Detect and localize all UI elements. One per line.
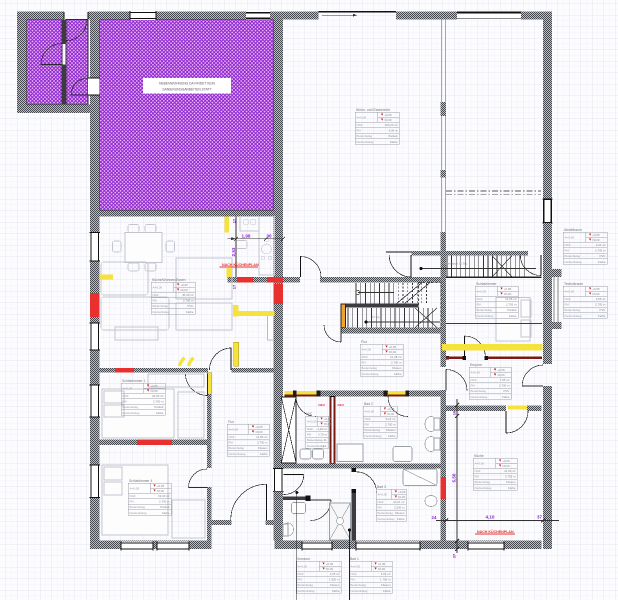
svg-text:1,706 m: 1,706 m [380,578,391,582]
svg-text:NEU: NEU [338,403,345,407]
svg-text:±0,00: ±0,00 [150,389,158,393]
svg-text:Bodenbelag: Bodenbelag [351,583,367,587]
svg-text:A=0,00: A=0,00 [475,461,485,465]
svg-text:2,700 m: 2,700 m [499,384,510,388]
svg-text:2,705 m: 2,705 m [595,303,606,307]
svg-text:Küche: Küche [474,454,484,458]
svg-text:PVC: PVC [600,254,606,258]
svg-text:NGF: NGF [477,297,483,301]
svg-text:Empore: Empore [470,363,482,367]
svg-text:2,700 m: 2,700 m [153,400,164,404]
svg-text:+0,05: +0,05 [504,287,512,291]
svg-text:RH: RH [229,441,233,445]
svg-text:RH: RH [130,500,134,504]
svg-text:±0,00: ±0,00 [378,567,386,571]
svg-text:NACH KÜCHENPLAN: NACH KÜCHENPLAN [477,529,514,534]
svg-text:Flur: Flur [228,420,235,424]
svg-text:Farbe: Farbe [502,395,510,399]
svg-text:NGF: NGF [378,500,384,504]
svg-text:Farbe: Farbe [508,486,516,490]
svg-text:Farbe: Farbe [186,310,194,314]
svg-text:Deckenbelag: Deckenbelag [153,310,170,314]
svg-text:RH: RH [471,384,475,388]
svg-text:Deckenbelag: Deckenbelag [357,140,374,144]
svg-text:±0,00: ±0,00 [180,288,188,292]
svg-text:Deckenbelag: Deckenbelag [307,444,324,448]
svg-text:2,195 m: 2,195 m [394,506,405,510]
svg-text:RH: RH [351,578,355,582]
svg-text:Farbe: Farbe [394,372,402,376]
svg-text:RH: RH [475,475,479,479]
svg-text:3,00 m: 3,00 m [389,129,398,133]
svg-text:14,86 m²: 14,86 m² [256,435,267,439]
svg-text:+0,05: +0,05 [150,384,158,388]
svg-text:PVC: PVC [600,308,606,312]
svg-text:NGF: NGF [365,417,371,421]
svg-text:21,08 m²: 21,08 m² [390,355,401,359]
svg-text:+0,05: +0,05 [324,417,332,421]
svg-text:±0,00: ±0,00 [324,422,332,426]
svg-text:Fliesen: Fliesen [506,480,516,484]
svg-text:Schlafzimmer 4: Schlafzimmer 4 [129,479,152,483]
svg-text:RH: RH [307,433,311,437]
svg-text:A=0,00: A=0,00 [153,285,163,289]
svg-text:6,06 m²: 6,06 m² [381,572,391,576]
svg-text:Farbe: Farbe [388,434,396,438]
svg-text:RH: RH [565,303,569,307]
svg-text:Deckenbelag: Deckenbelag [565,260,582,264]
svg-text:NGF: NGF [362,355,368,359]
svg-text:PVC: PVC [188,304,194,308]
svg-text:Parkett: Parkett [154,405,163,409]
svg-text:30: 30 [266,233,272,238]
svg-text:2,705 m: 2,705 m [506,303,517,307]
svg-text:NGF: NGF [153,293,159,297]
svg-text:2,700 m: 2,700 m [257,441,268,445]
svg-text:Deckenbelag: Deckenbelag [378,517,395,521]
svg-text:Vorraum: Vorraum [297,557,310,561]
svg-text:Bodenbelag: Bodenbelag [362,366,378,370]
svg-text:+0,05: +0,05 [180,283,188,287]
svg-text:RH: RH [153,299,157,303]
svg-text:A=0,00: A=0,00 [378,492,388,496]
svg-text:RH: RH [565,249,569,253]
svg-text:SANIERUNGSARBEITEN STATT: SANIERUNGSARBEITEN STATT [162,88,211,92]
svg-text:Farbe: Farbe [397,517,405,521]
svg-text:24: 24 [432,515,437,520]
svg-text:Fliesen: Fliesen [258,446,268,450]
svg-text:1,20 m²: 1,20 m² [317,427,327,431]
svg-text:Deckenbelag: Deckenbelag [298,589,315,593]
svg-text:Kellertreppe 16 Stg: Kellertreppe 16 Stg [443,262,467,266]
svg-text:17: 17 [232,284,237,289]
svg-text:A=0,00: A=0,00 [565,235,575,239]
svg-text:Bodenbelag: Bodenbelag [471,389,487,393]
svg-text:+0,05: +0,05 [497,368,505,372]
svg-text:NGF: NGF [229,435,235,439]
svg-text:+0,05: +0,05 [384,113,392,117]
svg-text:±0,00: ±0,00 [389,350,397,354]
svg-text:+0,05: +0,05 [378,562,386,566]
svg-text:A=0,00: A=0,00 [351,564,361,568]
svg-text:A=0,00: A=0,00 [365,409,375,413]
svg-text:±0,00: ±0,00 [592,238,600,242]
svg-text:Farbe: Farbe [598,260,606,264]
svg-text:Bodenbelag: Bodenbelag [565,308,581,312]
svg-text:Deckenbelag: Deckenbelag [229,452,246,456]
svg-text:±0,00: ±0,00 [384,118,392,122]
svg-text:Deckenbelag: Deckenbelag [475,486,492,490]
svg-text:Farbe: Farbe [390,140,398,144]
svg-text:Deckenbelag: Deckenbelag [362,372,379,376]
svg-text:Wohn- und Essbereich: Wohn- und Essbereich [356,108,390,112]
svg-text:RH: RH [477,303,481,307]
svg-text:±0,00: ±0,00 [387,412,395,416]
svg-text:Bad 1: Bad 1 [350,557,359,561]
svg-text:Bodenbelag: Bodenbelag [475,480,491,484]
svg-text:RH: RH [123,400,127,404]
svg-text:Deckenbelag: Deckenbelag [123,411,140,415]
svg-text:1,920 m: 1,920 m [329,578,340,582]
svg-text:Fliesen: Fliesen [386,428,396,432]
svg-text:16: 16 [452,410,457,415]
svg-text:2,700 m: 2,700 m [183,299,194,303]
svg-text:NGF: NGF [471,378,477,382]
svg-text:Farbe: Farbe [332,589,340,593]
svg-text:NEU: NEU [319,403,326,407]
svg-text:Bodenbelag: Bodenbelag [378,511,394,515]
svg-text:Farbe: Farbe [598,314,606,318]
svg-text:±0,00: ±0,00 [592,292,600,296]
svg-text:Farbe: Farbe [383,589,391,593]
svg-text:2,700 m: 2,700 m [385,423,396,427]
svg-text:13,68 m²: 13,68 m² [505,297,516,301]
svg-text:17: 17 [232,218,237,223]
svg-text:Deckenbelag: Deckenbelag [365,434,382,438]
svg-text:17 Stg: 17 Stg [372,315,380,319]
svg-text:Bad 3: Bad 3 [377,485,386,489]
svg-text:NACH KÜCHENPLAN: NACH KÜCHENPLAN [222,262,259,267]
svg-text:Fa.: Fa. [323,444,327,448]
svg-text:2,34 m²: 2,34 m² [596,243,606,247]
svg-text:NGF: NGF [565,243,571,247]
svg-text:7,95 m²: 7,95 m² [500,378,510,382]
svg-text:Deckenbelag: Deckenbelag [565,314,582,318]
svg-text:Bodenbelag: Bodenbelag [357,134,373,138]
svg-text:2,700 m: 2,700 m [391,361,402,365]
svg-text:10,01 m²: 10,01 m² [393,500,404,504]
svg-text:Farbe: Farbe [156,411,164,415]
svg-text:Fliesen: Fliesen [392,366,402,370]
svg-text:Deckenbelag: Deckenbelag [130,511,147,515]
svg-text:+0,05: +0,05 [326,562,334,566]
svg-text:100,20 m²: 100,20 m² [384,123,397,127]
svg-text:Deckenbelag: Deckenbelag [351,589,368,593]
svg-text:Bodenbelag: Bodenbelag [298,583,314,587]
svg-text:Bodenbelag: Bodenbelag [130,505,146,509]
svg-text:Fl.: Fl. [324,438,327,442]
svg-text:Farbe: Farbe [162,511,170,515]
svg-text:NGF: NGF [298,572,304,576]
svg-text:37: 37 [537,515,542,520]
svg-text:+0,05: +0,05 [592,287,600,291]
svg-text:RH: RH [298,578,302,582]
svg-text:NGF: NGF [351,572,357,576]
svg-text:Deckenbelag: Deckenbelag [477,314,494,318]
svg-text:Fliesen: Fliesen [330,583,340,587]
svg-text:A=0,00: A=0,00 [130,486,140,490]
svg-text:Parkett: Parkett [388,134,397,138]
svg-text:2,705 m: 2,705 m [595,249,606,253]
svg-text:Flur: Flur [361,340,368,344]
svg-text:Bodenbelag: Bodenbelag [565,254,581,258]
svg-text:A=0,00: A=0,00 [123,386,133,390]
svg-text:NGF: NGF [130,494,136,498]
svg-text:±0,00: ±0,00 [497,373,505,377]
svg-text:RH: RH [378,506,382,510]
svg-text:Bodenbelag: Bodenbelag [123,405,139,409]
svg-text:Abstellraum: Abstellraum [564,228,582,232]
svg-text:A=0,00: A=0,00 [229,427,239,431]
svg-text:19,30 m²: 19,30 m² [158,494,169,498]
svg-text:±0,00: ±0,00 [504,292,512,296]
svg-text:5,22 m²: 5,22 m² [386,417,396,421]
svg-text:±0,00: ±0,00 [157,489,165,493]
svg-text:RH: RH [365,423,369,427]
svg-text:Fliesen: Fliesen [381,583,391,587]
svg-text:A=0,00: A=0,00 [307,419,317,423]
svg-text:Farbe: Farbe [509,314,517,318]
svg-text:45,00 m²: 45,00 m² [182,293,193,297]
svg-text:A=0,00: A=0,00 [471,370,481,374]
svg-text:±0,00: ±0,00 [255,430,263,434]
svg-text:Parkett: Parkett [160,505,169,509]
svg-text:2,705 m: 2,705 m [505,475,516,479]
svg-text:A=0,00: A=0,00 [298,564,308,568]
svg-text:2,53: 2,53 [231,247,236,256]
svg-text:Deckenbelag: Deckenbelag [471,395,488,399]
svg-text:3,25 m²: 3,25 m² [330,572,340,576]
svg-text:PVC: PVC [504,389,510,393]
svg-text:±0,00: ±0,00 [326,567,334,571]
svg-text:12,06 m²: 12,06 m² [504,469,515,473]
svg-text:Parkett: Parkett [507,308,516,312]
svg-text:A=0,00: A=0,00 [362,347,372,351]
svg-text:NGF: NGF [123,394,129,398]
svg-text:37: 37 [452,553,457,558]
svg-text:±0,00: ±0,00 [398,495,406,499]
svg-text:4,10: 4,10 [486,515,495,520]
svg-text:WC: WC [307,412,313,416]
svg-text:RH: RH [362,361,366,365]
svg-text:Bad 2: Bad 2 [364,402,373,406]
svg-text:NGF: NGF [565,297,571,301]
svg-text:Fliesen: Fliesen [395,511,405,515]
svg-text:3,68 m²: 3,68 m² [596,297,606,301]
svg-text:NGF: NGF [357,123,363,127]
svg-text:2,70 m: 2,70 m [318,433,327,437]
svg-text:+0,05: +0,05 [389,345,397,349]
svg-text:+0,05: +0,05 [255,425,263,429]
svg-text:NGF: NGF [475,469,481,473]
svg-text:±0,00: ±0,00 [502,464,510,468]
svg-text:Bodenbelag: Bodenbelag [477,308,493,312]
svg-text:Küche/Wohnen/Essen: Küche/Wohnen/Essen [152,278,186,282]
svg-text:+0,05: +0,05 [502,459,510,463]
svg-text:A=0,00: A=0,00 [357,115,367,119]
svg-text:2,700 m: 2,700 m [159,500,170,504]
svg-text:NGF: NGF [307,427,313,431]
svg-text:Technikraum: Technikraum [564,282,583,286]
svg-text:A=0,00: A=0,00 [477,289,487,293]
svg-text:Bodenbelag: Bodenbelag [229,446,245,450]
svg-text:+0,05: +0,05 [398,490,406,494]
svg-text:A=0,00: A=0,00 [565,289,575,293]
svg-text:Schlafzimmer 1: Schlafzimmer 1 [122,379,145,383]
svg-text:5,50: 5,50 [452,473,457,482]
svg-text:+0,05: +0,05 [387,407,395,411]
svg-text:Farbe: Farbe [260,452,268,456]
svg-text:NEBENWOHNUNG DA FINDET KEIN: NEBENWOHNUNG DA FINDET KEIN [159,82,215,86]
svg-text:Bodenbelag: Bodenbelag [307,438,323,442]
svg-text:+0,05: +0,05 [157,484,165,488]
svg-text:Bodenbelag: Bodenbelag [153,304,169,308]
svg-text:Schlafzimmer: Schlafzimmer [476,282,497,286]
svg-text:1,98: 1,98 [242,233,251,238]
svg-text:+0,05: +0,05 [592,233,600,237]
svg-text:Bodenbelag: Bodenbelag [365,428,381,432]
svg-text:RH: RH [357,129,361,133]
svg-text:20,06 m²: 20,06 m² [152,394,163,398]
